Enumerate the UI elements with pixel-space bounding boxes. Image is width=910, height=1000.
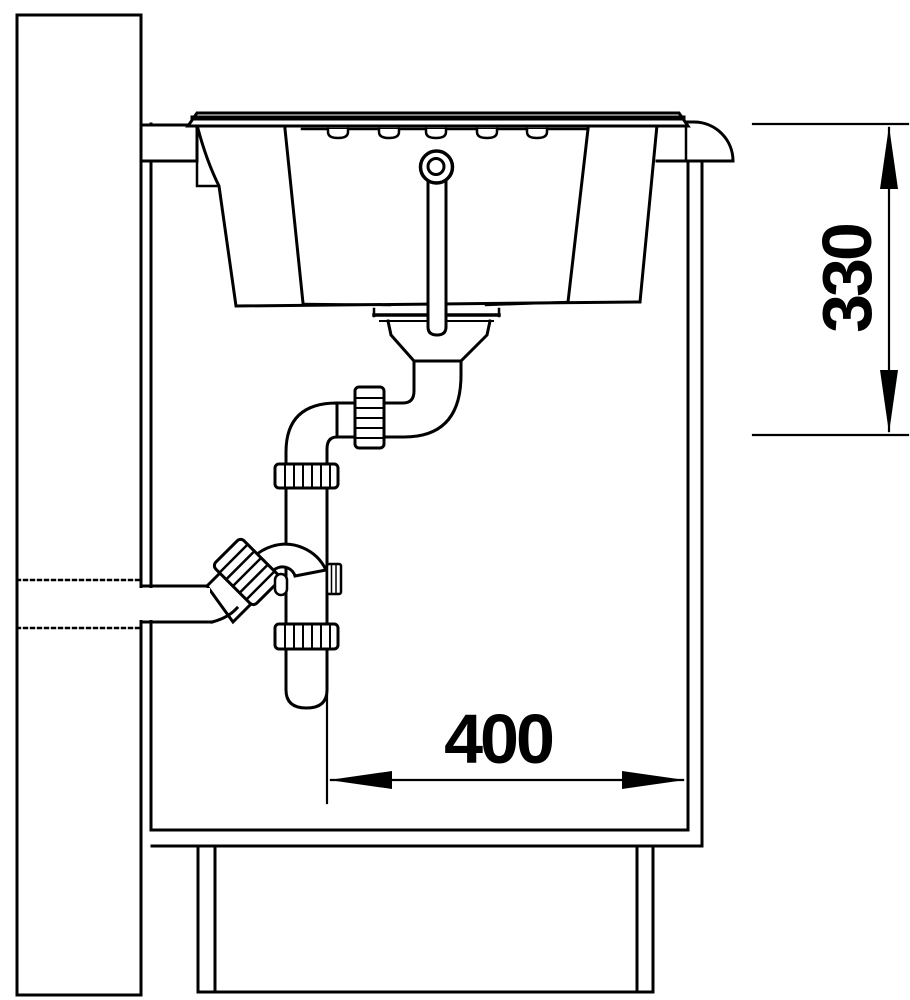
overflow-pipe <box>428 176 446 335</box>
side-tab-nut <box>327 564 341 594</box>
trap-inner-tube-end <box>275 574 287 595</box>
plinth <box>198 846 653 992</box>
wall <box>17 15 141 995</box>
drain-elbow <box>383 361 461 437</box>
drain-body <box>383 321 490 437</box>
dimension-label-400: 400 <box>444 700 553 778</box>
overflow-ring-inner <box>428 159 444 175</box>
arrow-right-icon <box>622 771 685 789</box>
dimension-label-330: 330 <box>808 224 886 333</box>
drain-pipe-stub <box>337 403 356 437</box>
arrow-down-icon <box>880 370 898 433</box>
countertop-left-section <box>141 125 197 161</box>
wall-outline <box>17 15 141 995</box>
arrow-up-icon <box>880 126 898 189</box>
siphon-trap <box>138 403 341 708</box>
countertop-bullnose-edge <box>655 122 733 161</box>
drain-assembly <box>337 309 499 448</box>
arrow-left-icon <box>329 771 392 789</box>
union-nut-3 <box>275 624 338 649</box>
union-nut-2 <box>275 464 338 488</box>
union-nut-1 <box>355 387 384 448</box>
technical-drawing-page: 330 400 <box>0 0 910 1000</box>
sink-section-diagram: 330 400 <box>0 0 910 1000</box>
